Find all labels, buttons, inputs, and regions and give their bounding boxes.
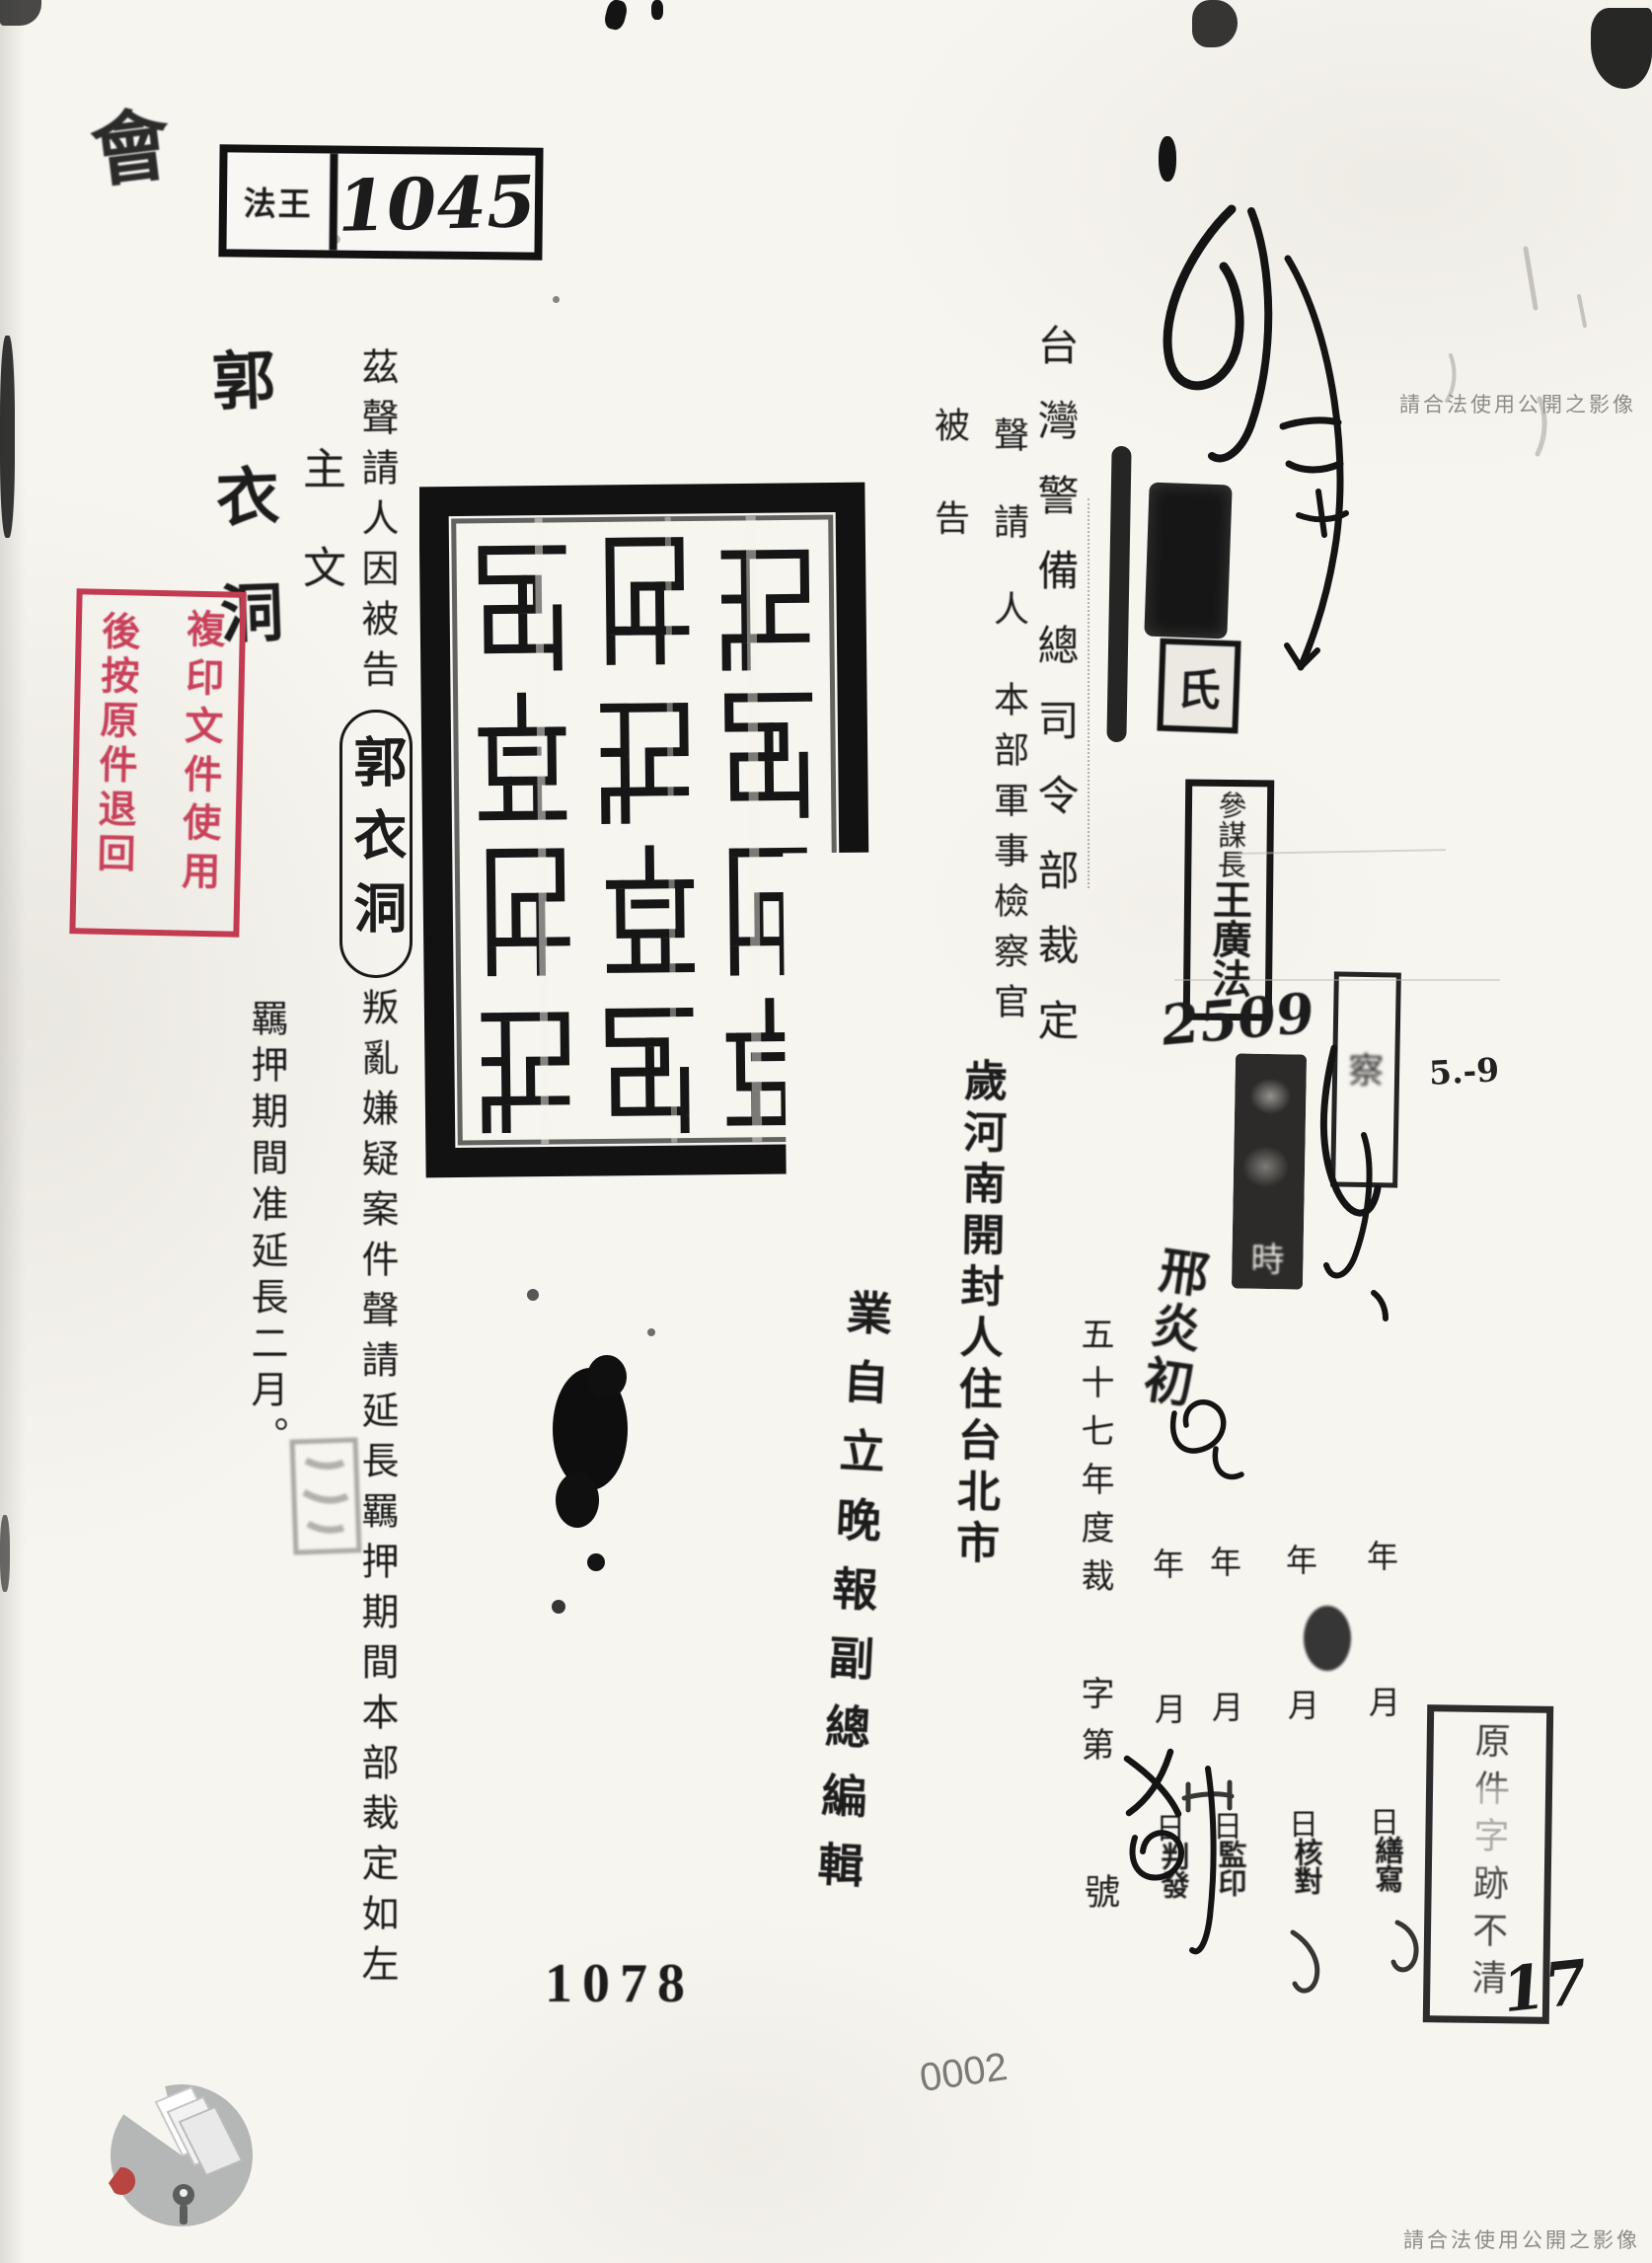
handwriting-overlay bbox=[0, 0, 1652, 2263]
scanned-document-page: 會 法王 1045 郭衣洞 複印文件使用 後按原件退回 台灣警備總司令部裁定 聲… bbox=[0, 0, 1652, 2263]
